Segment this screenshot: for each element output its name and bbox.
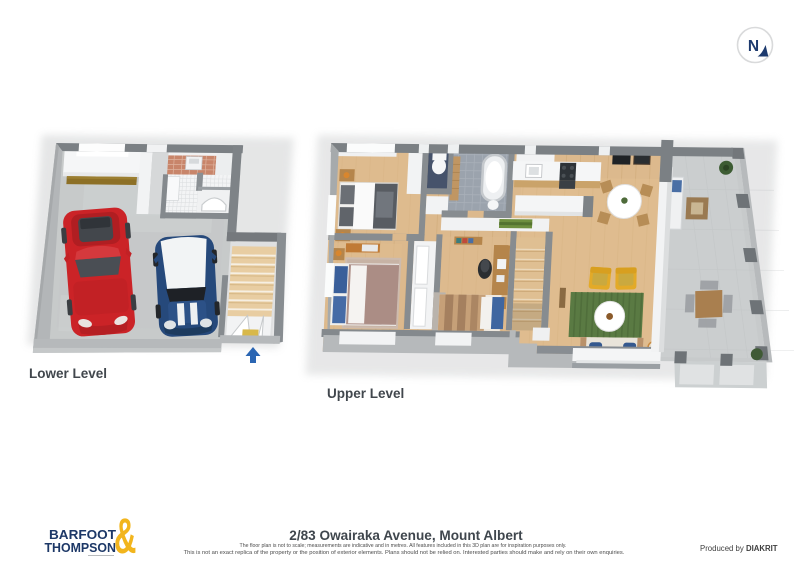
svg-text:Upper Level: Upper Level	[327, 386, 404, 401]
svg-text:N: N	[748, 38, 759, 55]
svg-text:The floor plan is not to scale: The floor plan is not to scale; measurem…	[240, 543, 567, 549]
svg-text:This is not an exact replica o: This is not an exact replica of the prop…	[184, 550, 625, 556]
svg-text:2/83 Owairaka Avenue, Mount Al: 2/83 Owairaka Avenue, Mount Albert	[289, 528, 523, 543]
svg-text:Produced by DIAKRIT: Produced by DIAKRIT	[700, 544, 778, 553]
svg-text:BARFOOT: BARFOOT	[49, 528, 116, 542]
svg-text:&: &	[114, 507, 136, 563]
svg-text:THOMPSON: THOMPSON	[45, 541, 117, 555]
svg-text:Lower Level: Lower Level	[29, 366, 107, 381]
